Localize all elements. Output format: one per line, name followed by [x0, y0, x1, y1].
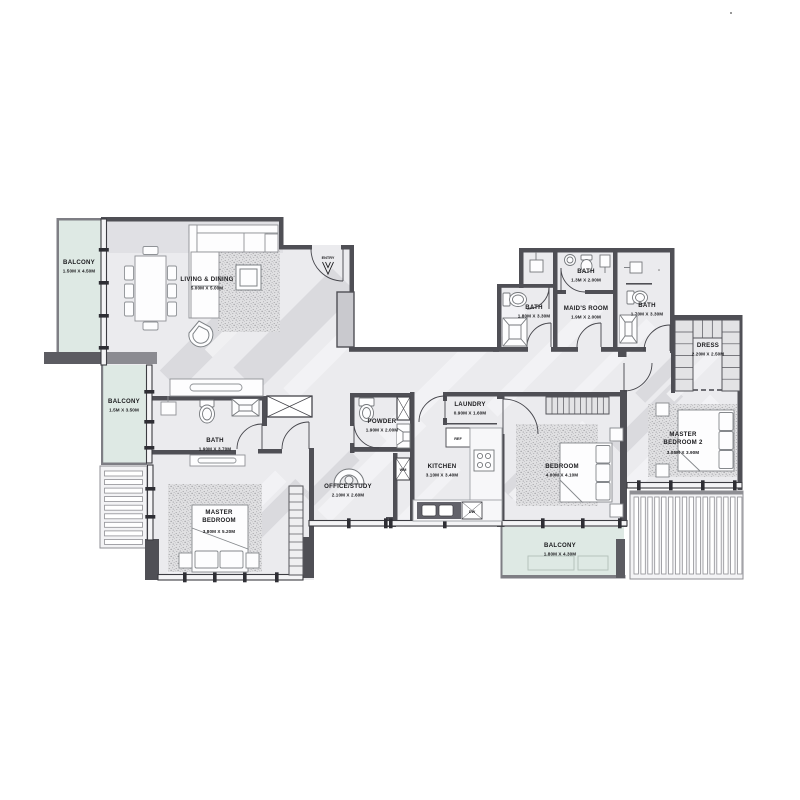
svg-text:1.80M X 3.30M: 1.80M X 3.30M: [518, 314, 551, 319]
svg-text:1.9M X 2.00M: 1.9M X 2.00M: [571, 315, 601, 320]
svg-text:BALCONY: BALCONY: [544, 542, 576, 549]
svg-text:KITCHEN: KITCHEN: [428, 463, 457, 470]
svg-text:BATH: BATH: [525, 304, 542, 311]
svg-text:BALCONY: BALCONY: [108, 398, 140, 405]
svg-text:1.50M X 4.50M: 1.50M X 4.50M: [63, 269, 96, 274]
svg-text:BATH: BATH: [638, 302, 655, 309]
svg-text:MAID'S ROOM: MAID'S ROOM: [564, 305, 608, 312]
svg-text:4.00M X 4.10M: 4.00M X 4.10M: [546, 473, 579, 478]
svg-text:0.90M X 1.60M: 0.90M X 1.60M: [454, 411, 487, 416]
svg-text:BATH: BATH: [206, 437, 223, 444]
svg-text:REF: REF: [454, 437, 462, 441]
svg-text:POWDER: POWDER: [368, 418, 397, 425]
svg-text:3.05M X 3.90M: 3.05M X 3.90M: [667, 450, 700, 455]
svg-text:WM: WM: [400, 468, 407, 472]
svg-text:DW: DW: [469, 510, 476, 514]
svg-text:LAUNDRY: LAUNDRY: [454, 401, 485, 408]
svg-text:BEDROOM: BEDROOM: [545, 463, 579, 470]
svg-text:3.10M X 3.40M: 3.10M X 3.40M: [426, 473, 459, 478]
svg-text:ENTRY: ENTRY: [322, 256, 335, 260]
svg-text:1.5M X 3.50M: 1.5M X 3.50M: [109, 408, 139, 413]
svg-text:BATH: BATH: [577, 268, 594, 275]
svg-text:5.00M X 5.00M: 5.00M X 5.00M: [191, 286, 224, 291]
svg-text:1.80M X 4.30M: 1.80M X 4.30M: [544, 552, 577, 557]
svg-text:LIVING & DINING: LIVING & DINING: [180, 276, 233, 283]
svg-text:2.20M X 2.50M: 2.20M X 2.50M: [692, 352, 725, 357]
svg-text:BEDROOM: BEDROOM: [202, 517, 236, 524]
svg-text:3.80M X 5.20M: 3.80M X 5.20M: [203, 529, 236, 534]
svg-text:MASTER: MASTER: [669, 431, 697, 438]
svg-text:2.10M X 2.60M: 2.10M X 2.60M: [332, 493, 365, 498]
svg-text:OFFICE/STUDY: OFFICE/STUDY: [324, 483, 372, 490]
svg-text:BALCONY: BALCONY: [63, 259, 95, 266]
svg-text:1.3M X 2.00M: 1.3M X 2.00M: [571, 278, 601, 283]
svg-text:MASTER: MASTER: [205, 509, 233, 516]
svg-text:1.90M X 2.00M: 1.90M X 2.00M: [366, 428, 399, 433]
svg-text:1.70M X 3.30M: 1.70M X 3.30M: [631, 312, 664, 317]
svg-text:BEDROOM 2: BEDROOM 2: [663, 439, 703, 446]
svg-text:1.90M X 3.70M: 1.90M X 3.70M: [199, 447, 232, 452]
svg-text:DRESS: DRESS: [697, 342, 719, 349]
